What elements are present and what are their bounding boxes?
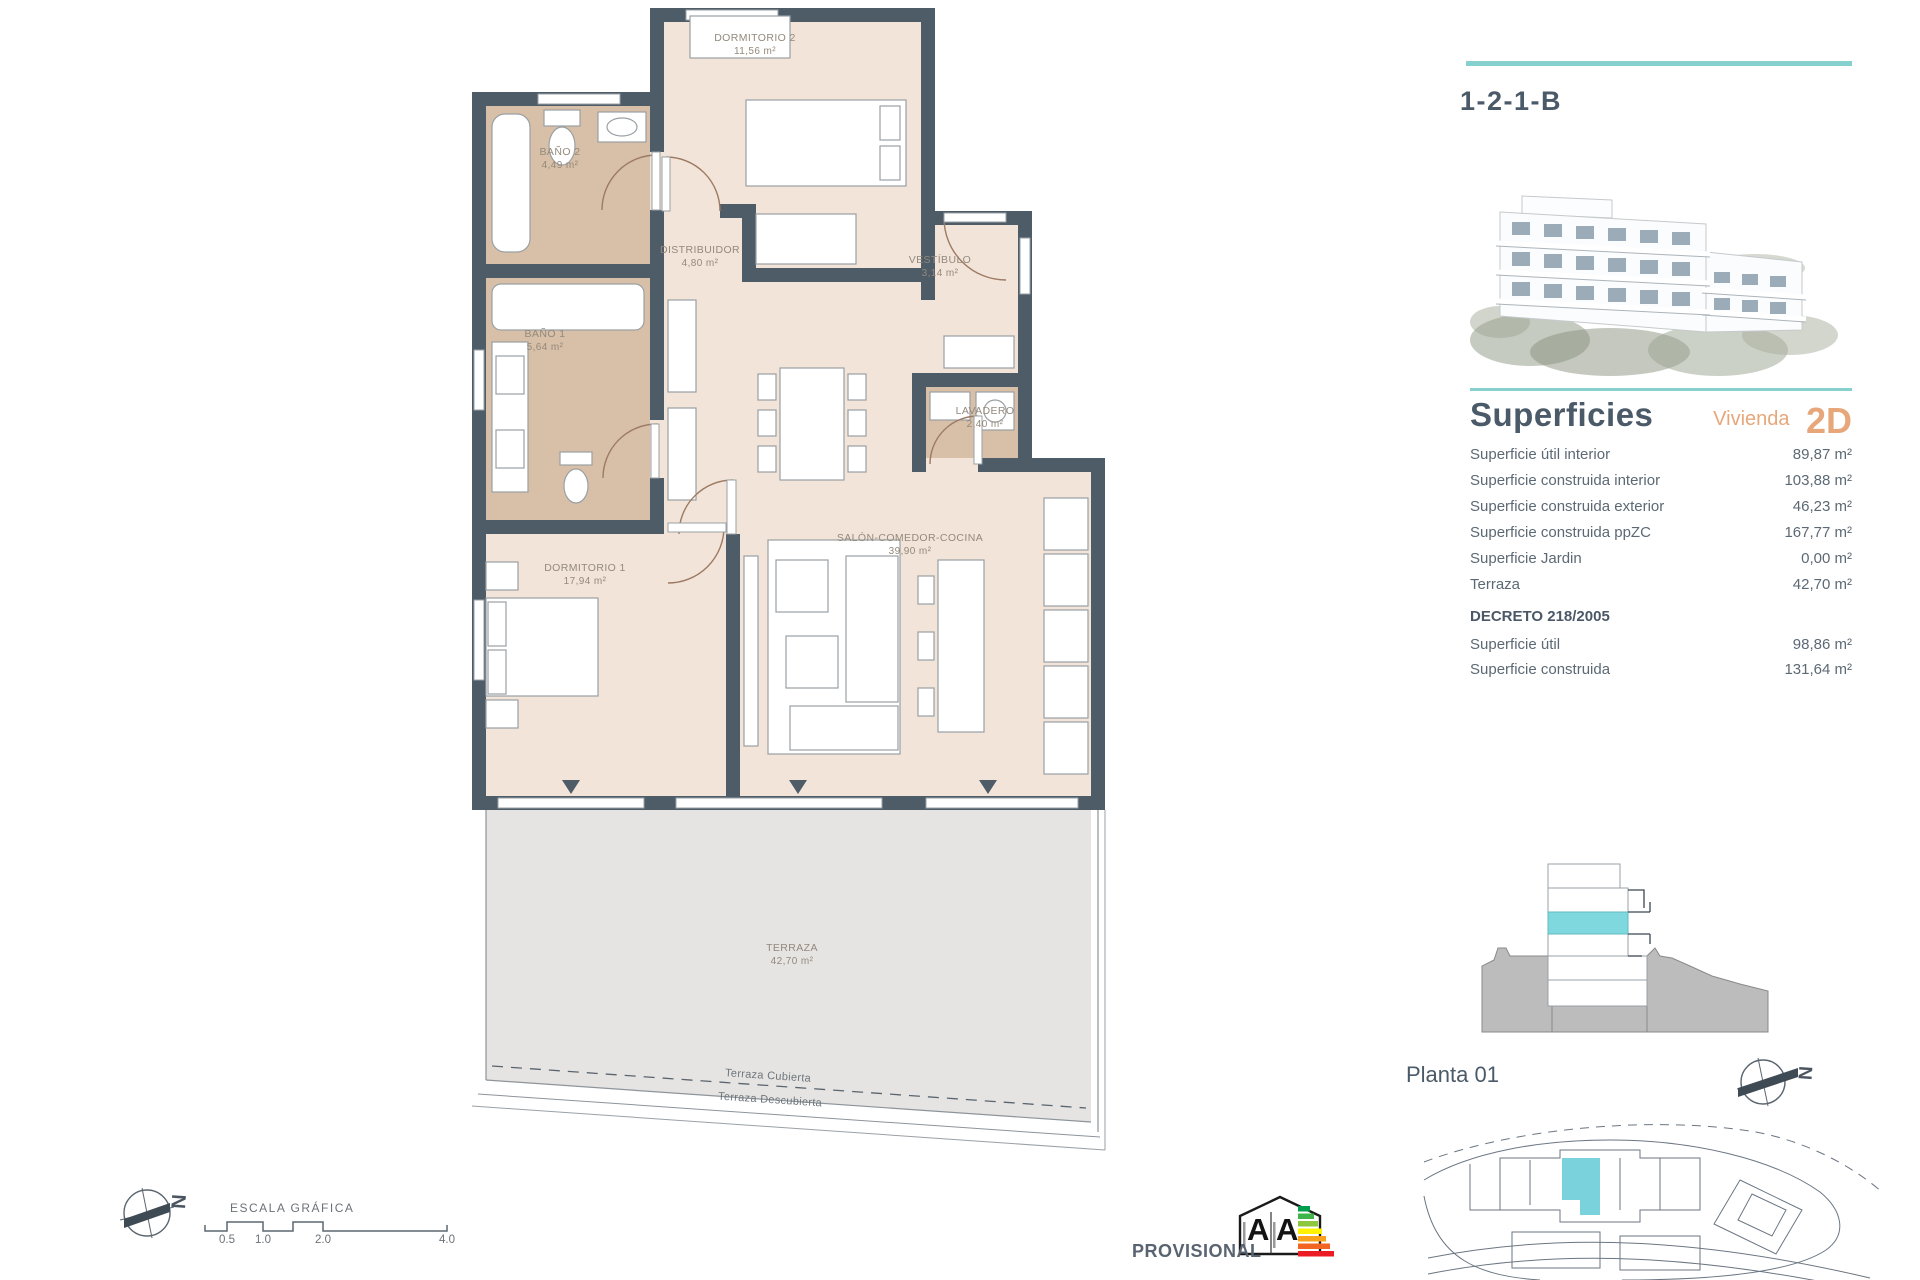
room-label-lavadero: LAVADERO 2,40 m² [890,405,1080,431]
planta-label: Planta 01 [1406,1062,1499,1088]
plan-sheet: DORMITORIO 2 11,56 m² BAÑO 2 4,49 m² DIS… [0,0,1920,1280]
decreto-row: Superficie construida 131,64 m² [1470,661,1852,681]
scale-tick: 0.5 [207,1234,247,1246]
room-label-bano1: BAÑO 1 5,64 m² [450,328,640,354]
decreto-heading: DECRETO 218/2005 [1470,608,1610,625]
site-compass-icon [1737,1058,1798,1106]
room-label-terraza: TERRAZA 42,70 m² [697,942,887,968]
surface-row: Superficie construida ppZC 167,77 m² [1470,524,1852,544]
section-diagram [1482,864,1768,1032]
scale-label: ESCALA GRÁFICA [230,1201,354,1215]
room-label-distribuidor: DISTRIBUIDOR 4,80 m² [605,244,795,270]
room-label-dormitorio2: DORMITORIO 2 11,56 m² [660,32,850,58]
scale-tick: 4.0 [427,1234,467,1246]
building-render [1470,196,1838,376]
compass-north-letter: N [165,1193,189,1209]
room-label-dormitorio1: DORMITORIO 1 17,94 m² [490,562,680,588]
superficies-divider [1470,388,1852,391]
highlighted-unit [1562,1158,1600,1215]
surface-row: Superficie Jardin 0,00 m² [1470,550,1852,570]
decreto-row: Superficie útil 98,86 m² [1470,636,1852,656]
surface-row: Terraza 42,70 m² [1470,576,1852,596]
surface-row: Superficie construida interior 103,88 m² [1470,472,1852,492]
room-label-salon: SALÓN-COMEDOR-COCINA 39,90 m² [815,532,1005,558]
scale-bar [205,1222,447,1231]
room-label-bano2: BAÑO 2 4,49 m² [465,146,655,172]
site-compass-north-letter: N [1792,1065,1815,1080]
energy-letter-a2: A [1276,1212,1298,1248]
room-label-vestibulo: VESTÍBULO 3,14 m² [845,254,1035,280]
top-divider [1466,61,1852,66]
vivienda-code: 2D [1806,400,1852,441]
unit-code: 1-2-1-B [1460,86,1562,117]
provisional-label: PROVISIONAL [1132,1241,1262,1262]
scale-tick: 1.0 [243,1234,283,1246]
scale-tick: 2.0 [303,1234,343,1246]
surface-row: Superficie útil interior 89,87 m² [1470,446,1852,466]
energy-letter-a1: A [1247,1212,1269,1248]
surface-row: Superficie construida exterior 46,23 m² [1470,498,1852,518]
vivienda-label: Vivienda [1713,408,1789,430]
vivienda-type: Vivienda 2D [1610,400,1852,442]
site-plan [1424,1058,1882,1280]
